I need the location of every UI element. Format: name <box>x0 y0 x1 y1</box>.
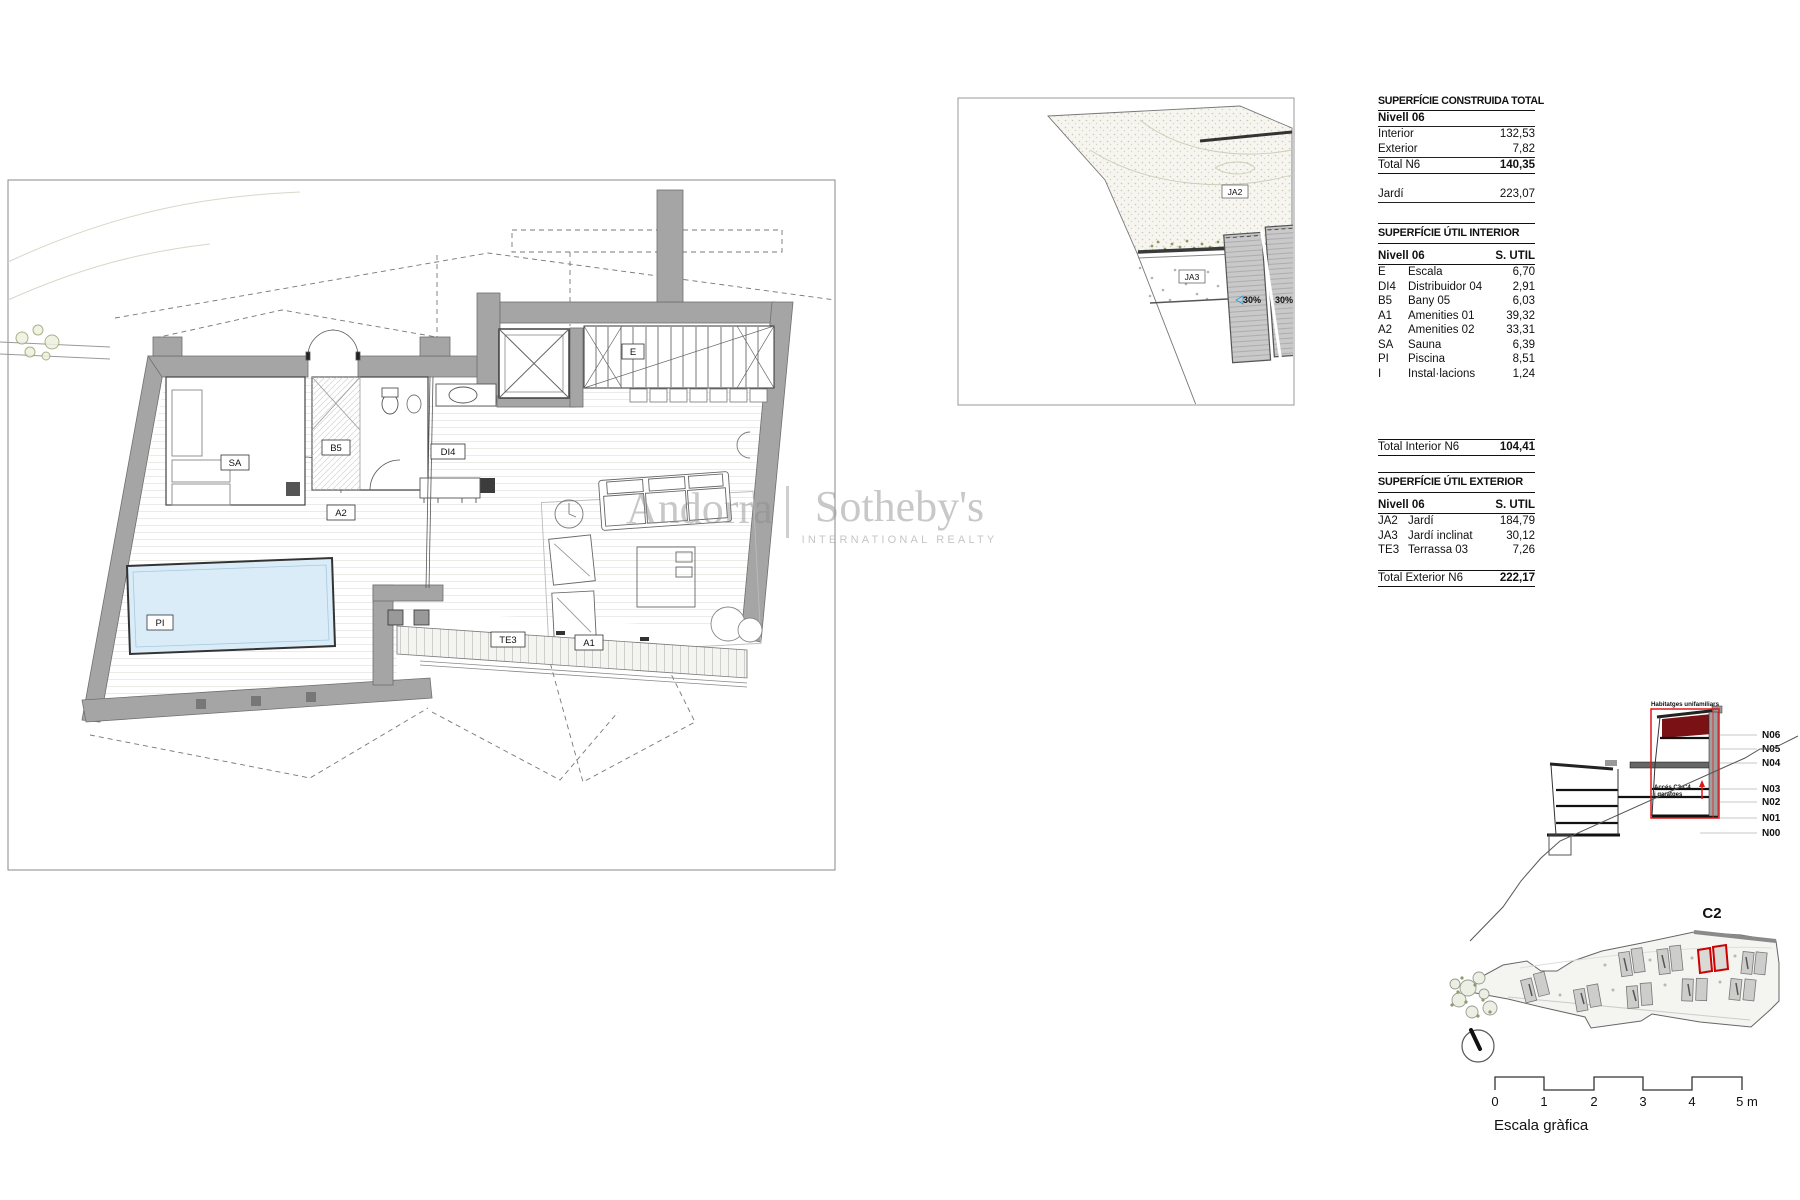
watermark-subtitle: INTERNATIONAL REALTY <box>802 534 998 546</box>
room-label-a2: A2 <box>327 505 355 520</box>
plan-sheet: SA B5 DI4 A2 A1 PI TE3 E <box>0 0 1800 1200</box>
watermark-brand-left: Andorra <box>626 484 773 534</box>
habitatges-label: Habitatges unifamiliars <box>1651 701 1720 708</box>
room-label-e: E <box>622 344 644 359</box>
label-ja2: JA2 <box>1222 185 1248 198</box>
svg-text:A2: A2 <box>335 508 347 519</box>
room-label-te3: TE3 <box>491 632 525 647</box>
svg-text:JA3: JA3 <box>1185 272 1200 282</box>
pool <box>127 558 335 654</box>
watermark: Andorra Sotheby's INTERNATIONAL REALTY <box>626 484 997 546</box>
svg-text:N04: N04 <box>1762 758 1781 769</box>
svg-text:4: 4 <box>1688 1094 1695 1109</box>
graphic-scale: 0 1 2 3 4 5 m Escala gràfica <box>1491 1077 1757 1134</box>
svg-text:2: 2 <box>1590 1094 1597 1109</box>
svg-text:N03: N03 <box>1762 784 1781 795</box>
svg-text:N06: N06 <box>1762 730 1781 741</box>
section-left-building <box>1547 760 1620 855</box>
svg-text:N02: N02 <box>1762 797 1781 808</box>
svg-text:30%: 30% <box>1243 295 1261 305</box>
room-label-b5: B5 <box>322 440 350 455</box>
bidet-icon <box>407 395 421 413</box>
svg-text:TE3: TE3 <box>499 635 516 646</box>
svg-text:N00: N00 <box>1762 828 1781 839</box>
svg-text:JA2: JA2 <box>1228 187 1243 197</box>
scale-caption: Escala gràfica <box>1494 1117 1589 1134</box>
room-label-a1: A1 <box>575 635 603 650</box>
svg-text:A1: A1 <box>583 638 595 649</box>
scale-bar <box>1495 1077 1742 1090</box>
section-right-building <box>1618 706 1722 816</box>
svg-text:E: E <box>630 347 636 358</box>
svg-text:3: 3 <box>1639 1094 1646 1109</box>
bathroom-b5 <box>312 377 428 490</box>
svg-text:N01: N01 <box>1762 813 1781 824</box>
sauna-heater <box>286 482 300 496</box>
level-n06-highlight <box>1662 714 1712 738</box>
svg-text:PI: PI <box>156 618 165 629</box>
section-platform <box>1630 762 1712 768</box>
unit-label-c2: C2 <box>1702 905 1721 922</box>
watermark-divider <box>786 486 789 538</box>
svg-text:0: 0 <box>1491 1094 1498 1109</box>
svg-text:DI4: DI4 <box>441 447 456 458</box>
site-location-map: C2 <box>1450 905 1779 1028</box>
room-label-di4: DI4 <box>431 444 465 459</box>
scale-ticks: 0 1 2 3 4 5 m <box>1491 1094 1757 1109</box>
room-label-pi: PI <box>147 615 173 630</box>
drawing-layer: SA B5 DI4 A2 A1 PI TE3 E <box>0 0 1800 1200</box>
svg-text:B5: B5 <box>330 443 342 454</box>
label-ja3: JA3 <box>1179 270 1205 283</box>
elevator <box>499 329 569 398</box>
section-diagram: Habitatges unifamiliars Accés C3-C4 i ga… <box>1470 701 1798 941</box>
inset-site-plan: 30% 30% JA2 JA3 <box>958 98 1308 405</box>
svg-text:30%: 30% <box>1275 295 1293 305</box>
svg-text:1: 1 <box>1540 1094 1547 1109</box>
north-compass <box>1462 1030 1494 1062</box>
svg-text:SA: SA <box>229 458 242 469</box>
room-label-sa: SA <box>221 455 249 470</box>
column-dark <box>480 478 495 493</box>
svg-text:5 m: 5 m <box>1736 1094 1758 1109</box>
watermark-brand-right: Sotheby's <box>815 484 984 530</box>
